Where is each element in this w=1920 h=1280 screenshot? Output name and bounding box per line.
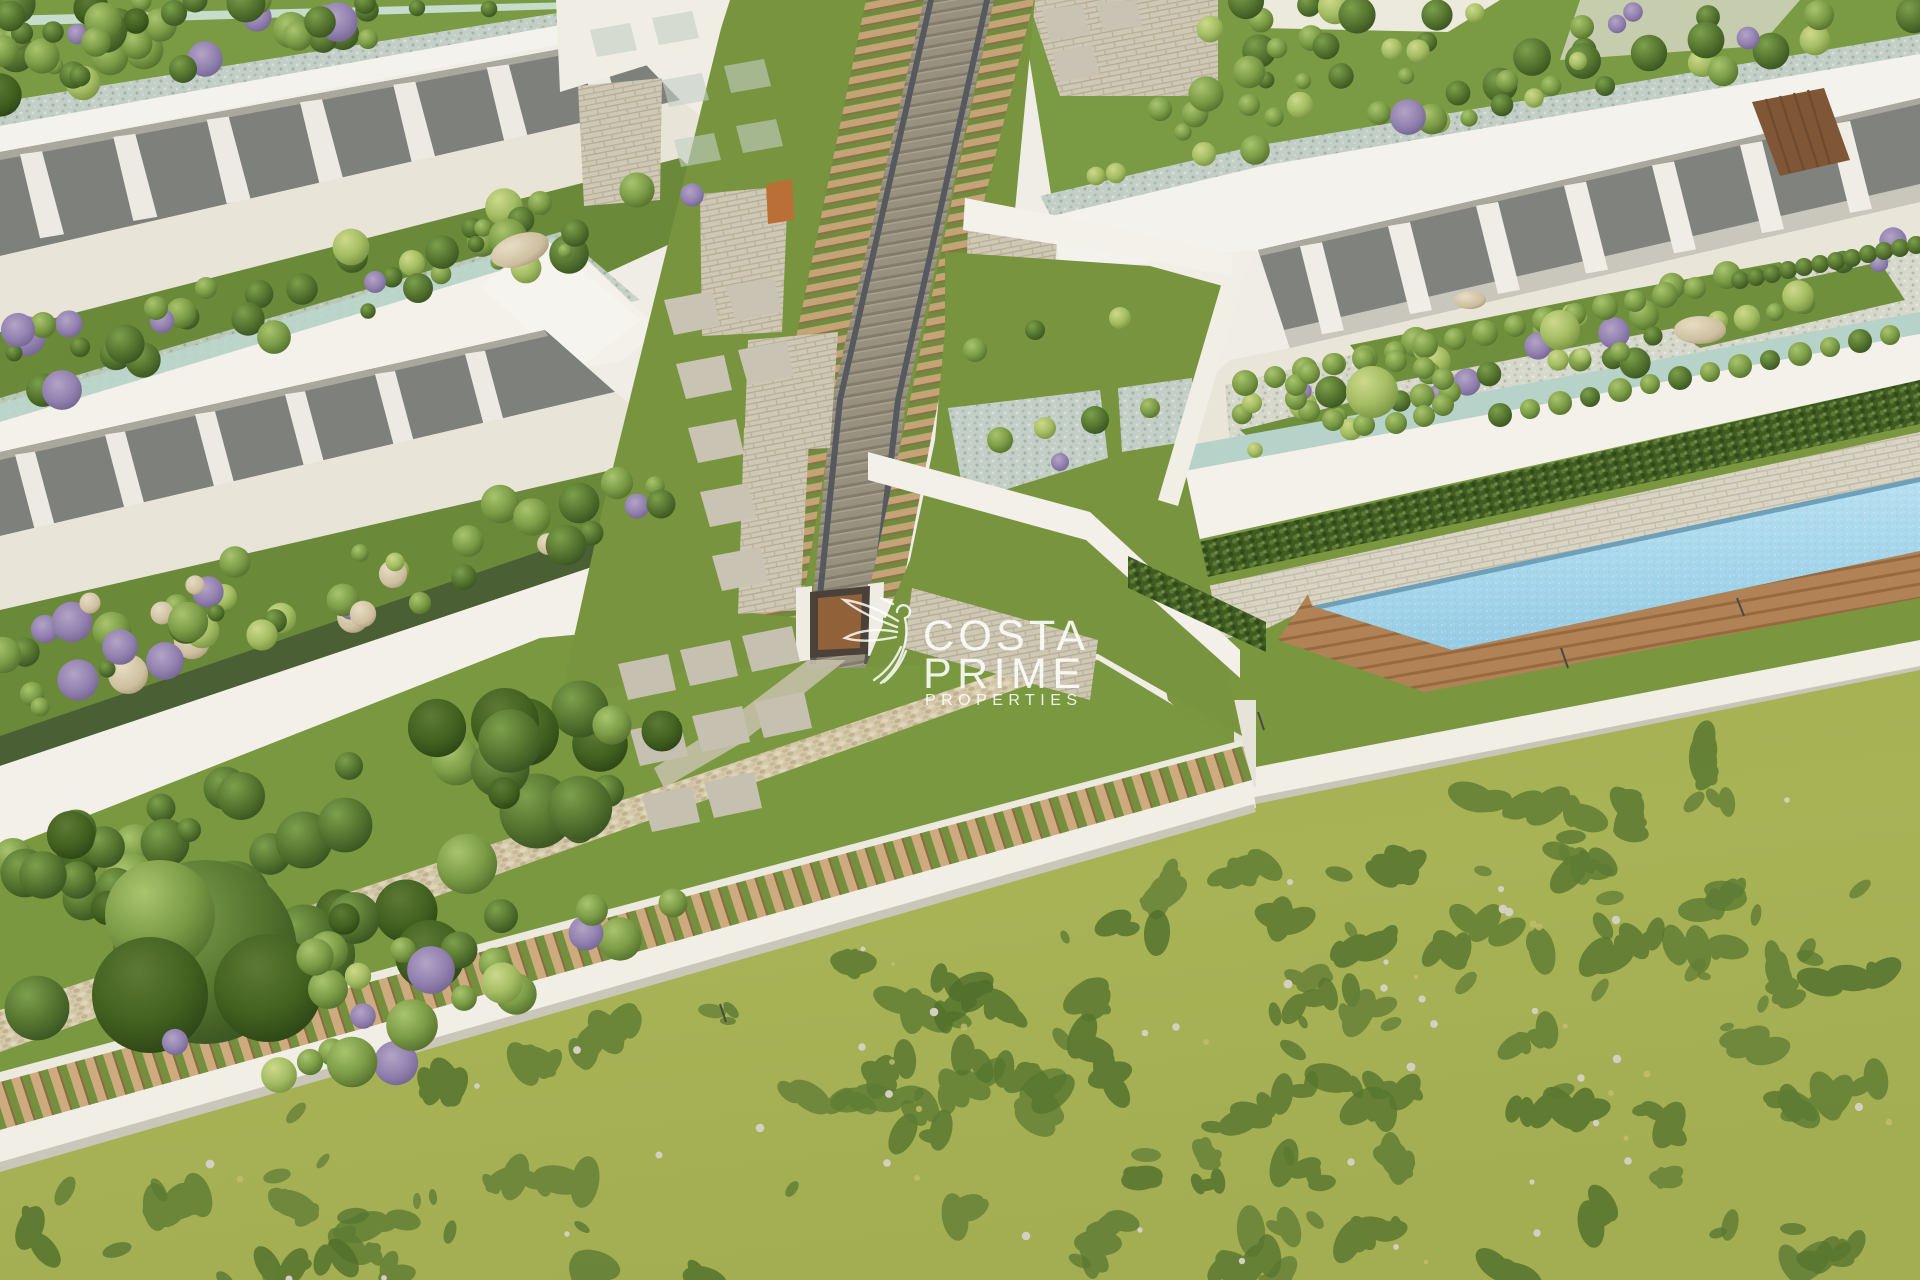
- svg-text:PRIME: PRIME: [923, 650, 1081, 698]
- svg-text:PROPERTIES: PROPERTIES: [925, 692, 1077, 709]
